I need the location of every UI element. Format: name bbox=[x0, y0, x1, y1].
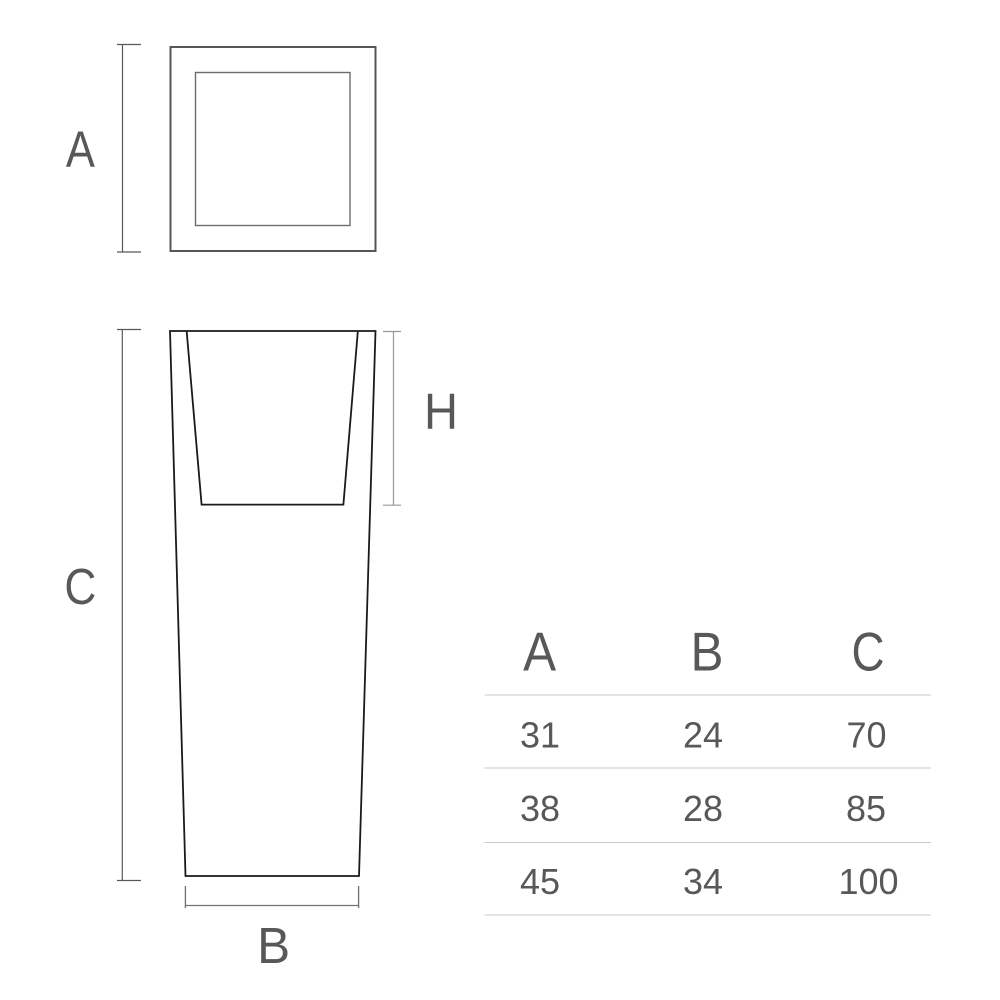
svg-text:28: 28 bbox=[683, 788, 723, 829]
svg-text:31: 31 bbox=[520, 715, 560, 756]
svg-text:24: 24 bbox=[683, 715, 723, 756]
svg-text:A: A bbox=[66, 121, 95, 178]
svg-text:70: 70 bbox=[846, 715, 886, 756]
svg-text:45: 45 bbox=[520, 861, 560, 902]
svg-text:B: B bbox=[257, 917, 290, 974]
svg-text:A: A bbox=[523, 621, 556, 683]
svg-text:B: B bbox=[691, 621, 724, 683]
svg-text:C: C bbox=[64, 558, 96, 615]
svg-text:85: 85 bbox=[846, 788, 886, 829]
svg-text:100: 100 bbox=[838, 861, 898, 902]
svg-text:38: 38 bbox=[520, 788, 560, 829]
svg-text:C: C bbox=[852, 621, 885, 683]
svg-text:H: H bbox=[424, 383, 458, 440]
svg-text:34: 34 bbox=[683, 861, 723, 902]
